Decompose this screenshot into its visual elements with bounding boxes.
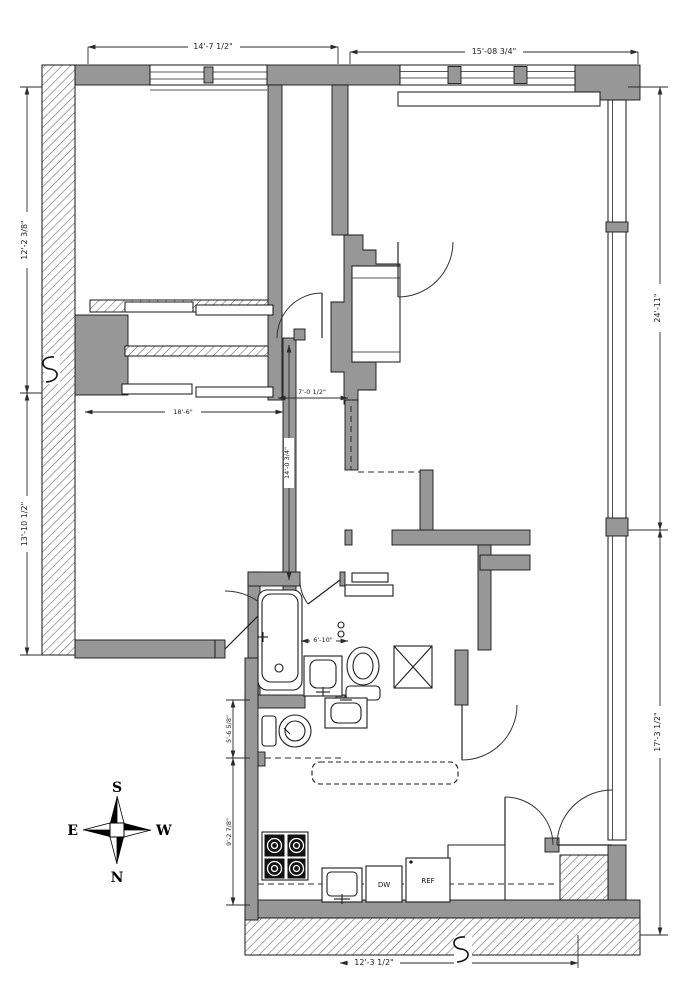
bath-entry-jamb	[340, 572, 345, 586]
kitchen: DW REF	[258, 832, 555, 904]
terrace-door-swing	[557, 790, 612, 845]
dim-top-right: 15'-08 3/4"	[472, 47, 517, 56]
window-mullion	[204, 67, 213, 83]
top-wall-segment	[267, 65, 400, 85]
sliding-door-panel	[196, 387, 273, 397]
bath-shelf	[352, 573, 388, 582]
right-wall-block	[606, 222, 628, 232]
door-jamb	[294, 329, 305, 340]
fireplace-box	[352, 266, 400, 362]
closet-pilaster	[75, 315, 128, 395]
living-window-band	[400, 65, 575, 85]
dim-left-upper: 12'-2 3/8"	[20, 220, 29, 259]
door-hardware	[338, 631, 344, 637]
bedroom2-south-wall	[75, 640, 215, 658]
floor-plan-page: DW REF 14'-7 1/2" 15'-08 3/4" 12'-2 3/8"…	[0, 0, 695, 1000]
kitchen-west-wall	[245, 658, 258, 920]
compass-east-label: E	[67, 823, 78, 839]
bathroom-fixtures	[258, 573, 432, 700]
pass-through-counter	[312, 762, 458, 784]
compass-south-label: S	[112, 780, 122, 796]
dim-right-lower: 17'-3 1/2"	[653, 712, 662, 751]
door-hardware	[338, 622, 344, 628]
right-wall-lower	[608, 845, 626, 905]
corner-hatched-area	[560, 855, 608, 900]
pantry-walls	[448, 845, 505, 900]
refrigerator-handle	[409, 860, 412, 863]
medicine-cabinet	[345, 585, 393, 596]
bottom-wall	[245, 900, 640, 918]
compass-north-label: N	[111, 870, 124, 886]
dishwasher-label: DW	[378, 881, 390, 889]
bath-north-wall	[345, 530, 352, 545]
closet-wall-2	[125, 346, 275, 356]
dim-bedroom2: 18'-6"	[173, 408, 193, 416]
bath-north-wall	[392, 530, 530, 545]
right-wall-block	[606, 518, 628, 536]
sliding-door-panel	[196, 305, 273, 315]
refrigerator-label: REF	[421, 877, 434, 885]
dim-right-upper: 24'-11"	[653, 293, 662, 322]
dim-bath: 6'-10"	[313, 636, 333, 644]
dim-top-left: 14'-7 1/2"	[193, 42, 232, 51]
bath-door-leaf	[308, 580, 340, 604]
window-seat	[398, 92, 600, 106]
powder-toilet-tank	[262, 716, 276, 746]
powder-toilet-bowl	[279, 715, 311, 747]
dim-kitchen: 9'-2 7/8"	[225, 818, 233, 846]
dim-left-lower: 13'-10 1/2"	[20, 502, 29, 547]
living-door-swing	[398, 242, 453, 297]
bathtub	[258, 590, 302, 690]
compass-west-label: W	[155, 823, 172, 839]
floor-plan-drawing: DW REF 14'-7 1/2" 15'-08 3/4" 12'-2 3/8"…	[0, 0, 695, 1000]
bedroom2-door-jamb	[215, 640, 225, 658]
sliding-door-panel	[122, 384, 192, 394]
window-mullion	[514, 67, 527, 84]
living-west-wall	[332, 85, 348, 235]
compass-rose: S N E W	[67, 780, 172, 886]
dining-west-wall	[455, 650, 468, 705]
bath-step-wall	[420, 470, 433, 532]
dim-bottom: 12'-3 1/2"	[354, 958, 393, 967]
window-mullion	[448, 67, 461, 84]
bath-entry-wall	[248, 572, 300, 586]
dim-entry: 7'-0 1/2"	[298, 388, 326, 396]
dining-north-wall	[480, 555, 530, 570]
right-wall	[608, 100, 626, 840]
hall-dining-door-swing	[462, 705, 517, 760]
bedroom1-east-wall	[268, 85, 282, 400]
sliding-door-panel	[125, 302, 193, 312]
dim-powder: 5'-6 5/8"	[225, 715, 233, 743]
bottom-lot-wall-hatched	[245, 918, 640, 955]
powder-room-fixtures	[262, 698, 458, 784]
dim-hall-vertical: 14'-0 3/4"	[283, 447, 291, 479]
